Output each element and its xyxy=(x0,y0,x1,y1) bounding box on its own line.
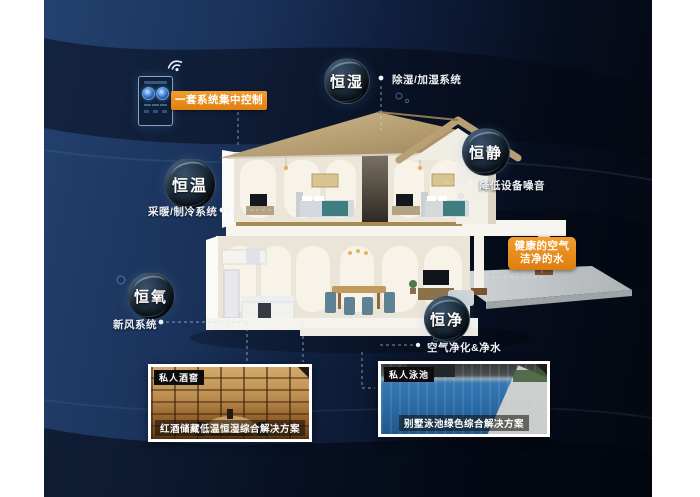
control-phone xyxy=(138,76,173,126)
annotation-noise-reduction: 降低设备噪音 xyxy=(479,178,545,193)
benefit-line1: 健康的空气 xyxy=(508,240,576,253)
bubble-label: 恒氧 xyxy=(134,286,168,307)
photo-private-pool: 私人泳池 别墅泳池绿色综合解决方案 xyxy=(378,361,550,437)
photo-caption: 红酒储藏低温恒湿综合解决方案 xyxy=(155,420,305,436)
annotation-purification-system: 空气净化&净水 xyxy=(427,340,501,355)
benefit-line2: 洁净的水 xyxy=(508,253,576,266)
humidity-dial-icon xyxy=(156,87,169,100)
bubble-constant-temperature: 恒温 xyxy=(164,158,216,210)
poster-canvas: 一套系统集中控制 恒湿 恒静 恒温 恒氧 恒净 除湿/加湿系统 降低设备噪音 采… xyxy=(0,0,700,497)
corner-fold-icon xyxy=(298,367,309,378)
phone-titlebar xyxy=(144,81,167,84)
annotation-hvac-system: 采暖/制冷系统 xyxy=(148,204,217,219)
photo-tag: 私人泳池 xyxy=(384,367,434,382)
bubble-constant-purity: 恒净 xyxy=(424,296,470,342)
bubble-label: 恒湿 xyxy=(330,71,364,92)
bubble-label: 恒温 xyxy=(172,172,208,196)
photo-wine-cellar: 私人酒窖 红酒储藏低温恒湿综合解决方案 xyxy=(148,364,312,442)
benefit-box: 健康的空气 洁净的水 xyxy=(508,237,576,270)
bubble-constant-humidity: 恒湿 xyxy=(324,58,370,104)
annotation-humidity-system: 除湿/加湿系统 xyxy=(392,72,461,87)
corner-fold-icon xyxy=(536,364,547,375)
bubble-constant-oxygen: 恒氧 xyxy=(127,272,175,320)
central-control-label: 一套系统集中控制 xyxy=(171,91,267,110)
thermostat-dial-icon xyxy=(142,87,155,100)
vase xyxy=(227,409,233,419)
bubble-label: 恒静 xyxy=(469,142,503,163)
annotation-fresh-air-system: 新风系统 xyxy=(113,317,157,332)
photo-caption: 别墅泳池绿色综合解决方案 xyxy=(399,415,529,431)
bubble-constant-quiet: 恒静 xyxy=(462,128,510,176)
upper-floor xyxy=(222,150,496,228)
photo-tag: 私人酒窖 xyxy=(154,370,204,385)
bubble-label: 恒净 xyxy=(430,309,464,330)
